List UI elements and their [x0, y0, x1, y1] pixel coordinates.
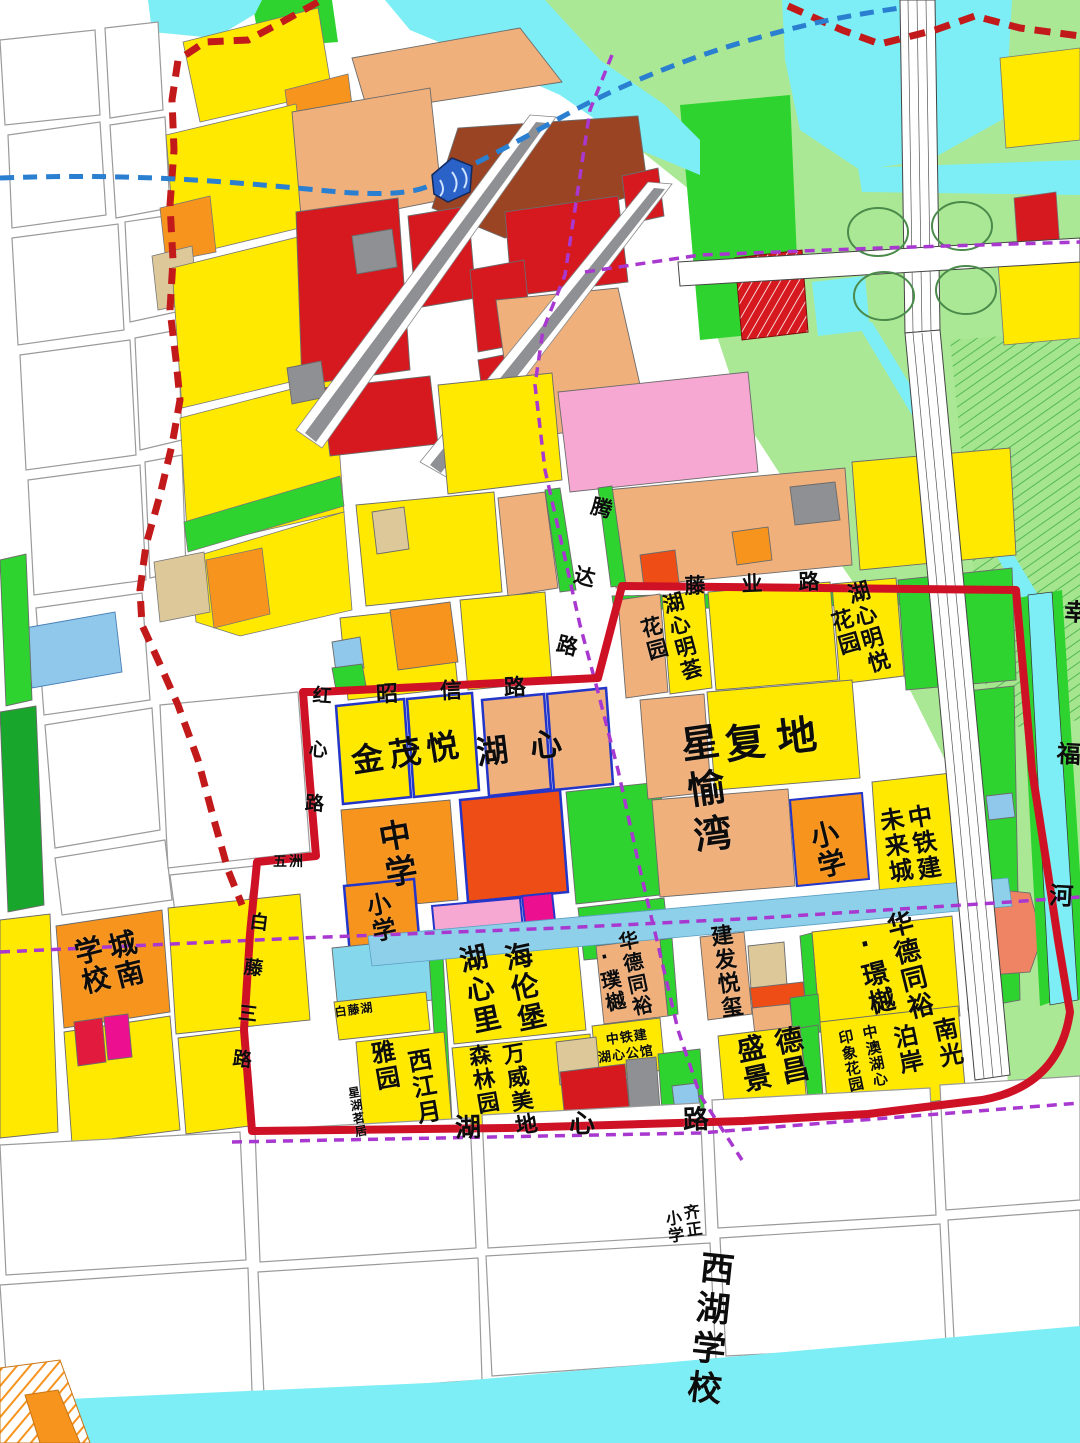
planning-map: 金茂悦湖心复地星愉湾湖心明荟花园湖心明悦花园中学小学小学中铁建未来城海伦堡湖心里…: [0, 0, 1080, 1443]
map-canvas: [0, 0, 1080, 1443]
